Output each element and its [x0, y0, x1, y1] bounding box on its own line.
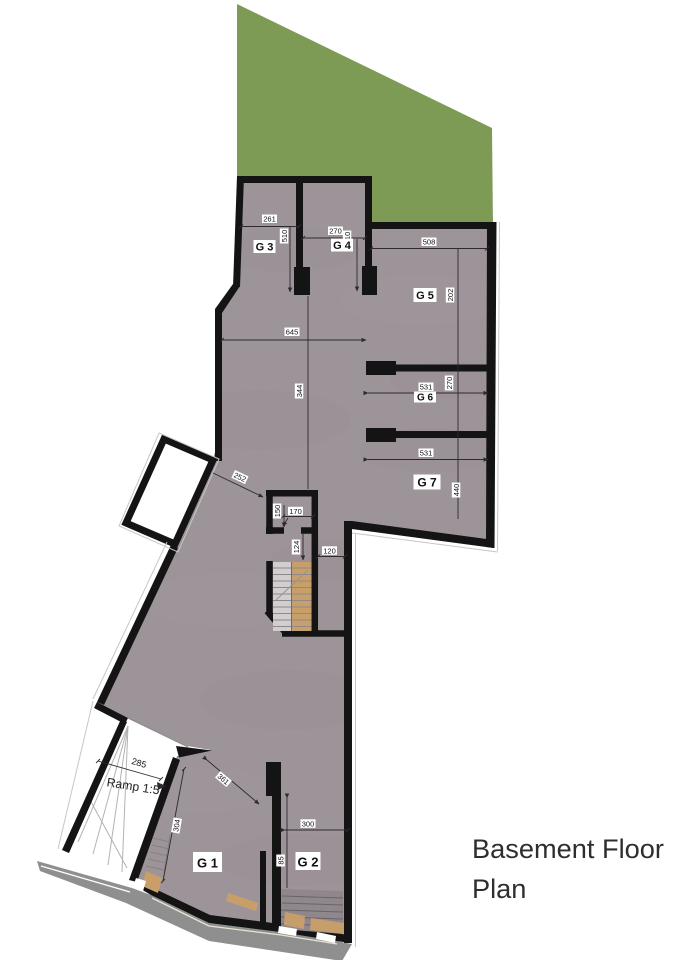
- svg-text:440: 440: [452, 484, 461, 497]
- svg-text:344: 344: [295, 385, 304, 398]
- svg-text:G 5: G 5: [416, 290, 434, 302]
- svg-text:G 1: G 1: [197, 856, 218, 871]
- svg-text:G 3: G 3: [256, 242, 274, 254]
- svg-text:Plan: Plan: [472, 873, 526, 904]
- svg-text:G 6: G 6: [417, 393, 434, 404]
- svg-text:Basement Floor: Basement Floor: [472, 833, 664, 864]
- svg-text:202: 202: [446, 289, 455, 302]
- svg-text:170: 170: [289, 507, 302, 516]
- svg-text:645: 645: [286, 327, 299, 336]
- svg-text:510: 510: [280, 230, 289, 243]
- svg-text:150: 150: [273, 505, 282, 518]
- svg-text:G 2: G 2: [298, 855, 319, 870]
- svg-text:508: 508: [423, 237, 436, 246]
- svg-text:270: 270: [445, 377, 454, 390]
- svg-text:531: 531: [420, 382, 433, 391]
- svg-text:120: 120: [323, 546, 336, 555]
- svg-text:124: 124: [292, 541, 301, 554]
- svg-text:G 4: G 4: [333, 240, 352, 252]
- svg-text:261: 261: [263, 214, 276, 223]
- svg-text:300: 300: [302, 819, 315, 828]
- svg-text:531: 531: [420, 448, 433, 457]
- svg-text:G 7: G 7: [417, 476, 437, 490]
- svg-text:270: 270: [329, 226, 342, 235]
- svg-text:85: 85: [276, 856, 285, 864]
